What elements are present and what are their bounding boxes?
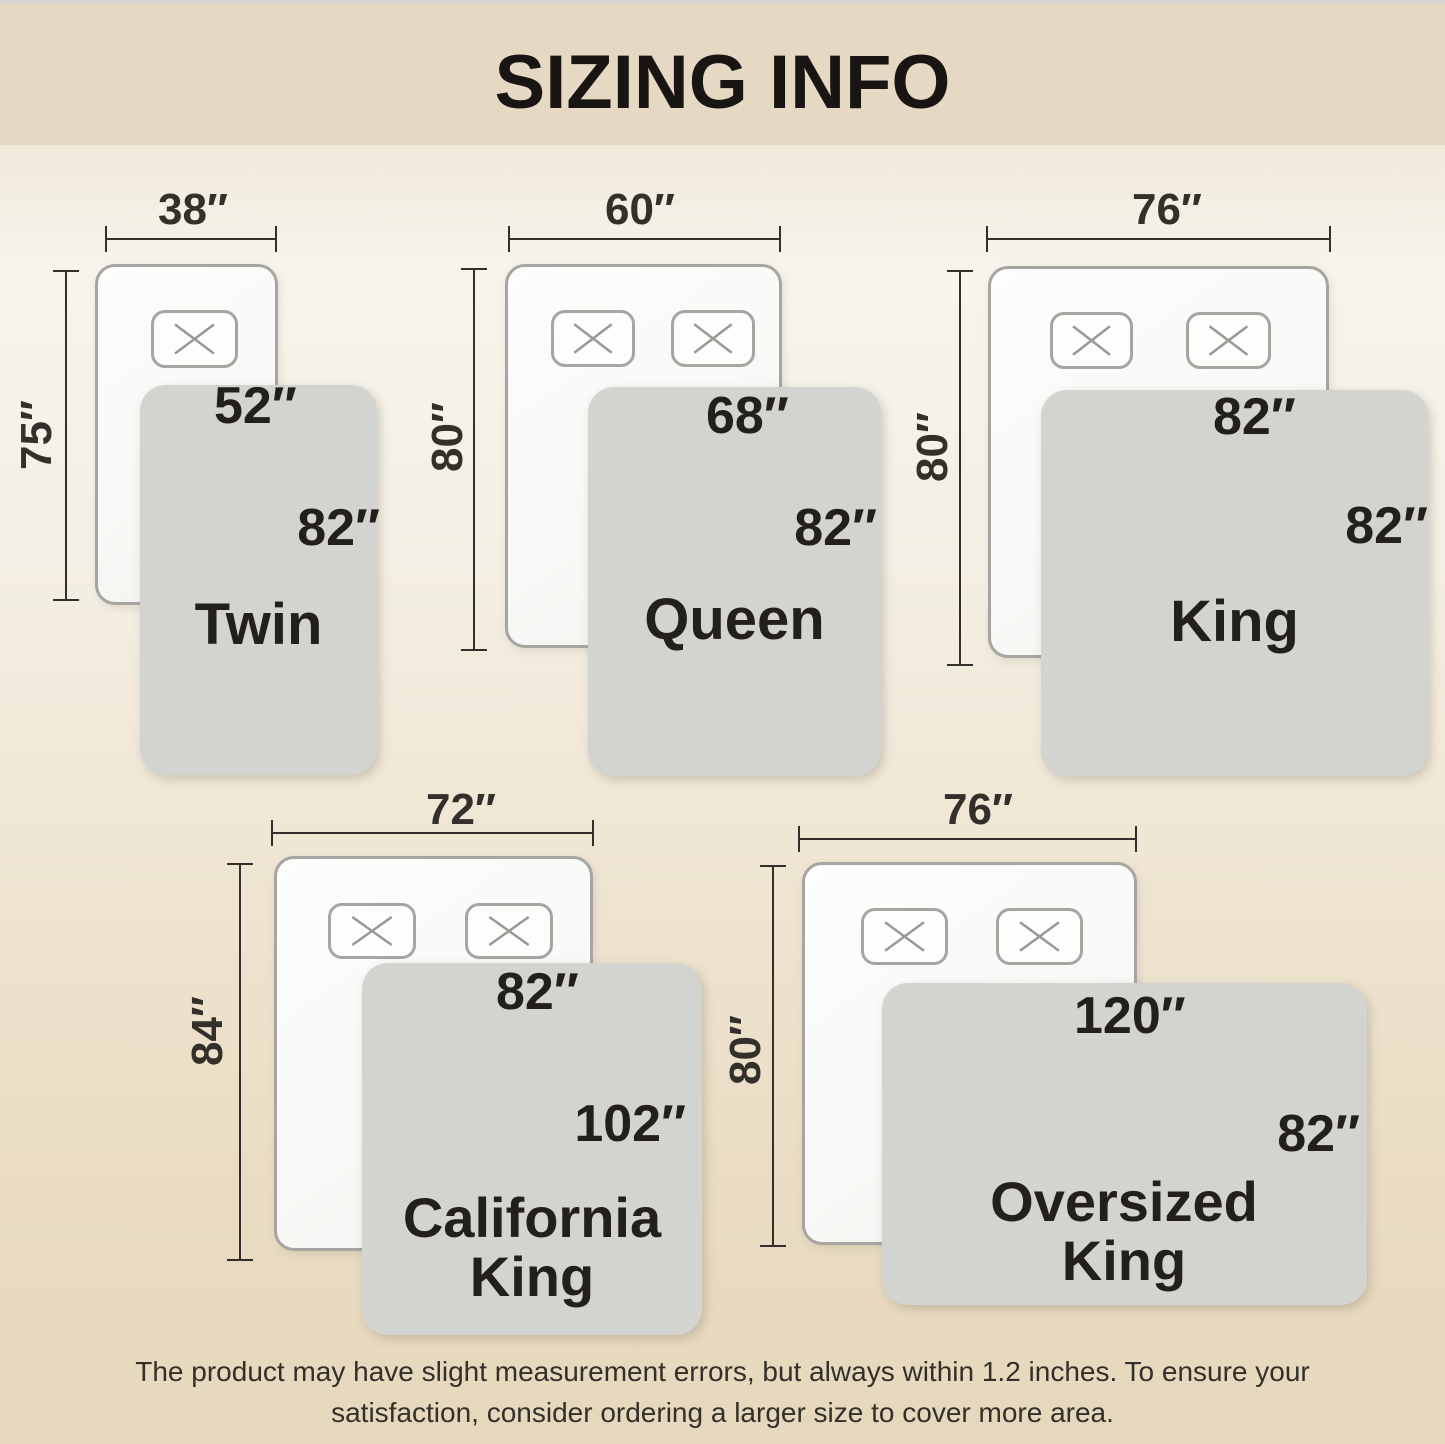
oversized-king-bed-length-line bbox=[772, 865, 774, 1247]
pillow-x-icon bbox=[864, 911, 945, 962]
oversized-king-blanket: 120″ 82″ Oversized King bbox=[882, 983, 1367, 1305]
disclaimer-text: The product may have slight measurement … bbox=[0, 1352, 1445, 1433]
disclaimer-line-2: satisfaction, consider ordering a larger… bbox=[0, 1393, 1445, 1434]
oversized-king-bed-width-label: 76″ bbox=[898, 788, 1058, 832]
disclaimer-line-1: The product may have slight measurement … bbox=[0, 1352, 1445, 1393]
pillow bbox=[996, 908, 1083, 965]
oversized-king-name-label: Oversized King bbox=[964, 1173, 1284, 1291]
oversized-king-blanket-width-label: 120″ bbox=[1074, 985, 1186, 1047]
oversized-king-bed-length-label: 80″ bbox=[724, 990, 768, 1110]
pillow-x-icon bbox=[999, 911, 1080, 962]
oversized-king-diagram: 76″ 80″ 120″ 82″ Oversized King bbox=[0, 0, 1445, 1444]
oversized-king-blanket-length-label: 82″ bbox=[1277, 1103, 1360, 1165]
oversized-king-bed-length-text: 80″ bbox=[724, 1015, 768, 1085]
oversized-king-bed-width-line bbox=[798, 838, 1137, 840]
sizing-info-page: SIZING INFO 38″ 75″ 52″ 82″ Twin 60″ 80″ bbox=[0, 0, 1445, 1444]
pillow bbox=[861, 908, 948, 965]
